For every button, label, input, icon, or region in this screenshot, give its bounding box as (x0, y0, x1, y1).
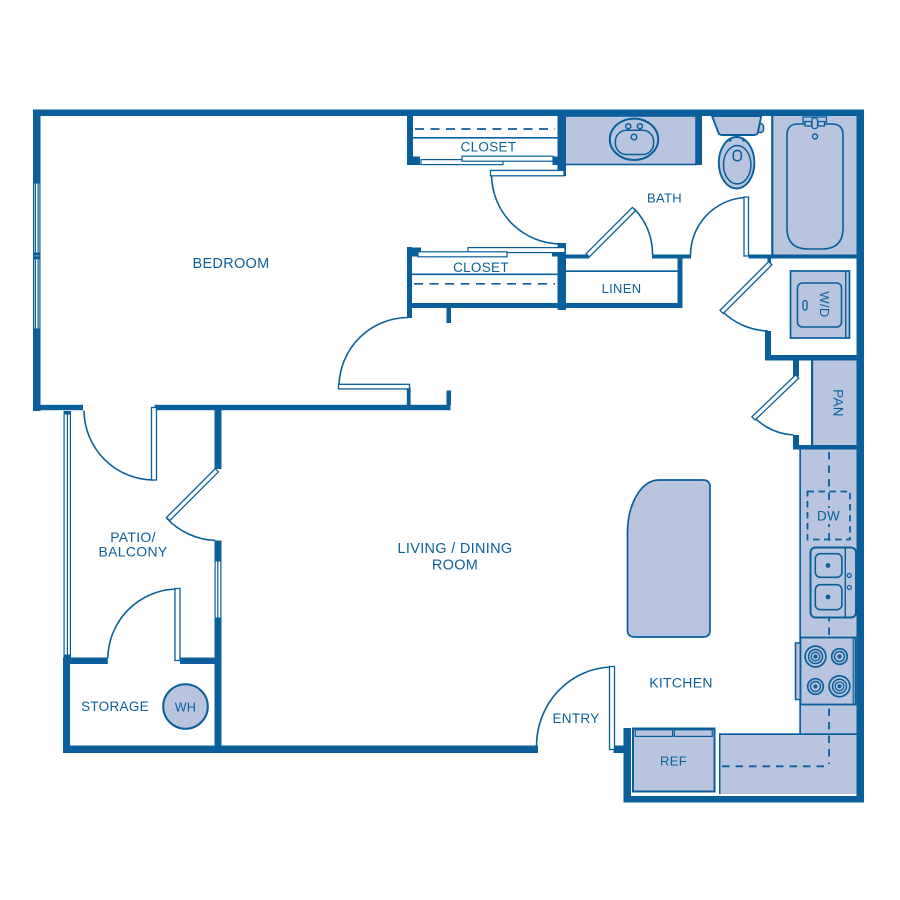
svg-text:STORAGE: STORAGE (81, 699, 149, 714)
svg-text:KITCHEN: KITCHEN (649, 675, 713, 691)
svg-text:REF: REF (660, 754, 687, 769)
svg-text:WH: WH (175, 701, 196, 715)
svg-text:LIVING / DINING: LIVING / DINING (398, 541, 513, 557)
svg-text:BATH: BATH (647, 191, 682, 206)
svg-text:PAN: PAN (831, 389, 846, 417)
svg-text:CLOSET: CLOSET (461, 140, 517, 155)
svg-text:DW: DW (817, 509, 840, 524)
svg-text:CLOSET: CLOSET (453, 260, 509, 275)
svg-text:BEDROOM: BEDROOM (192, 256, 269, 272)
svg-text:LINEN: LINEN (602, 281, 642, 296)
svg-text:BALCONY: BALCONY (98, 544, 167, 560)
svg-text:ROOM: ROOM (432, 558, 478, 574)
svg-text:W/D: W/D (817, 291, 832, 317)
svg-text:ENTRY: ENTRY (552, 711, 599, 726)
